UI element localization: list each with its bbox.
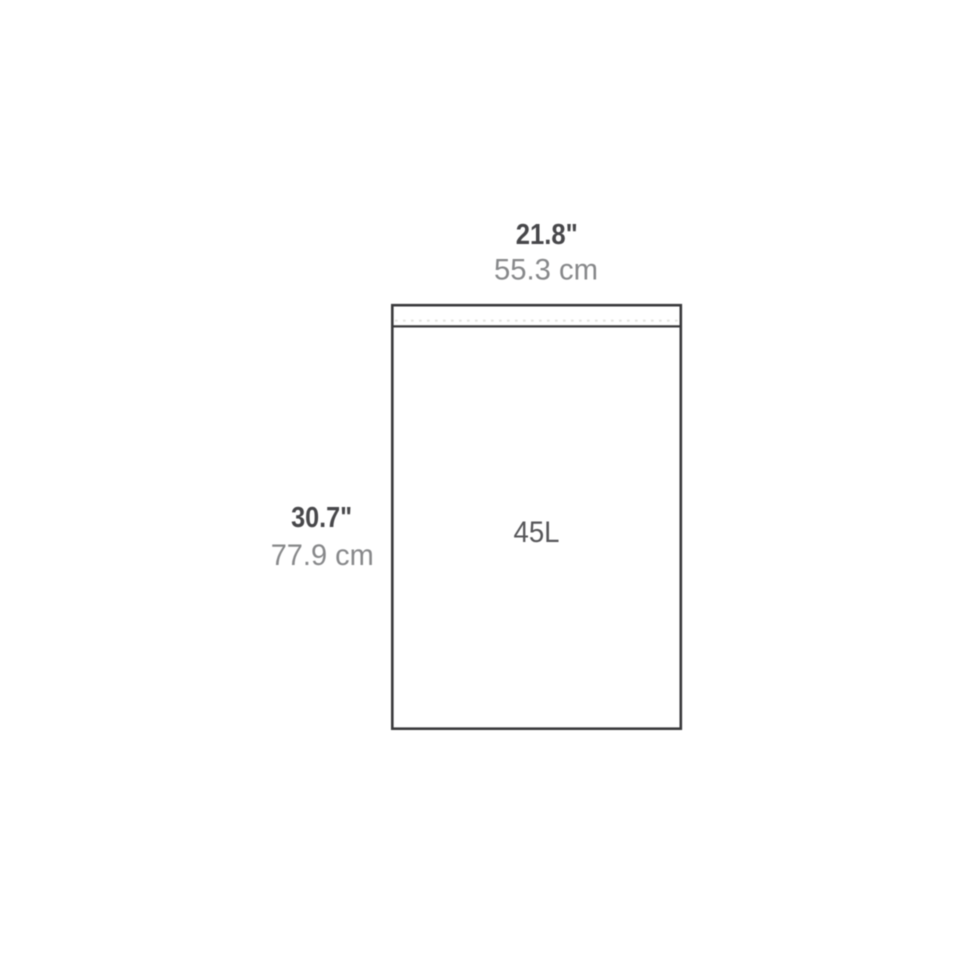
svg-text:30.7": 30.7" [291,502,352,534]
svg-text:21.8": 21.8" [516,219,578,251]
svg-text:45L: 45L [514,516,560,549]
svg-text:77.9 cm: 77.9 cm [271,539,374,572]
svg-text:55.3 cm: 55.3 cm [494,254,598,287]
